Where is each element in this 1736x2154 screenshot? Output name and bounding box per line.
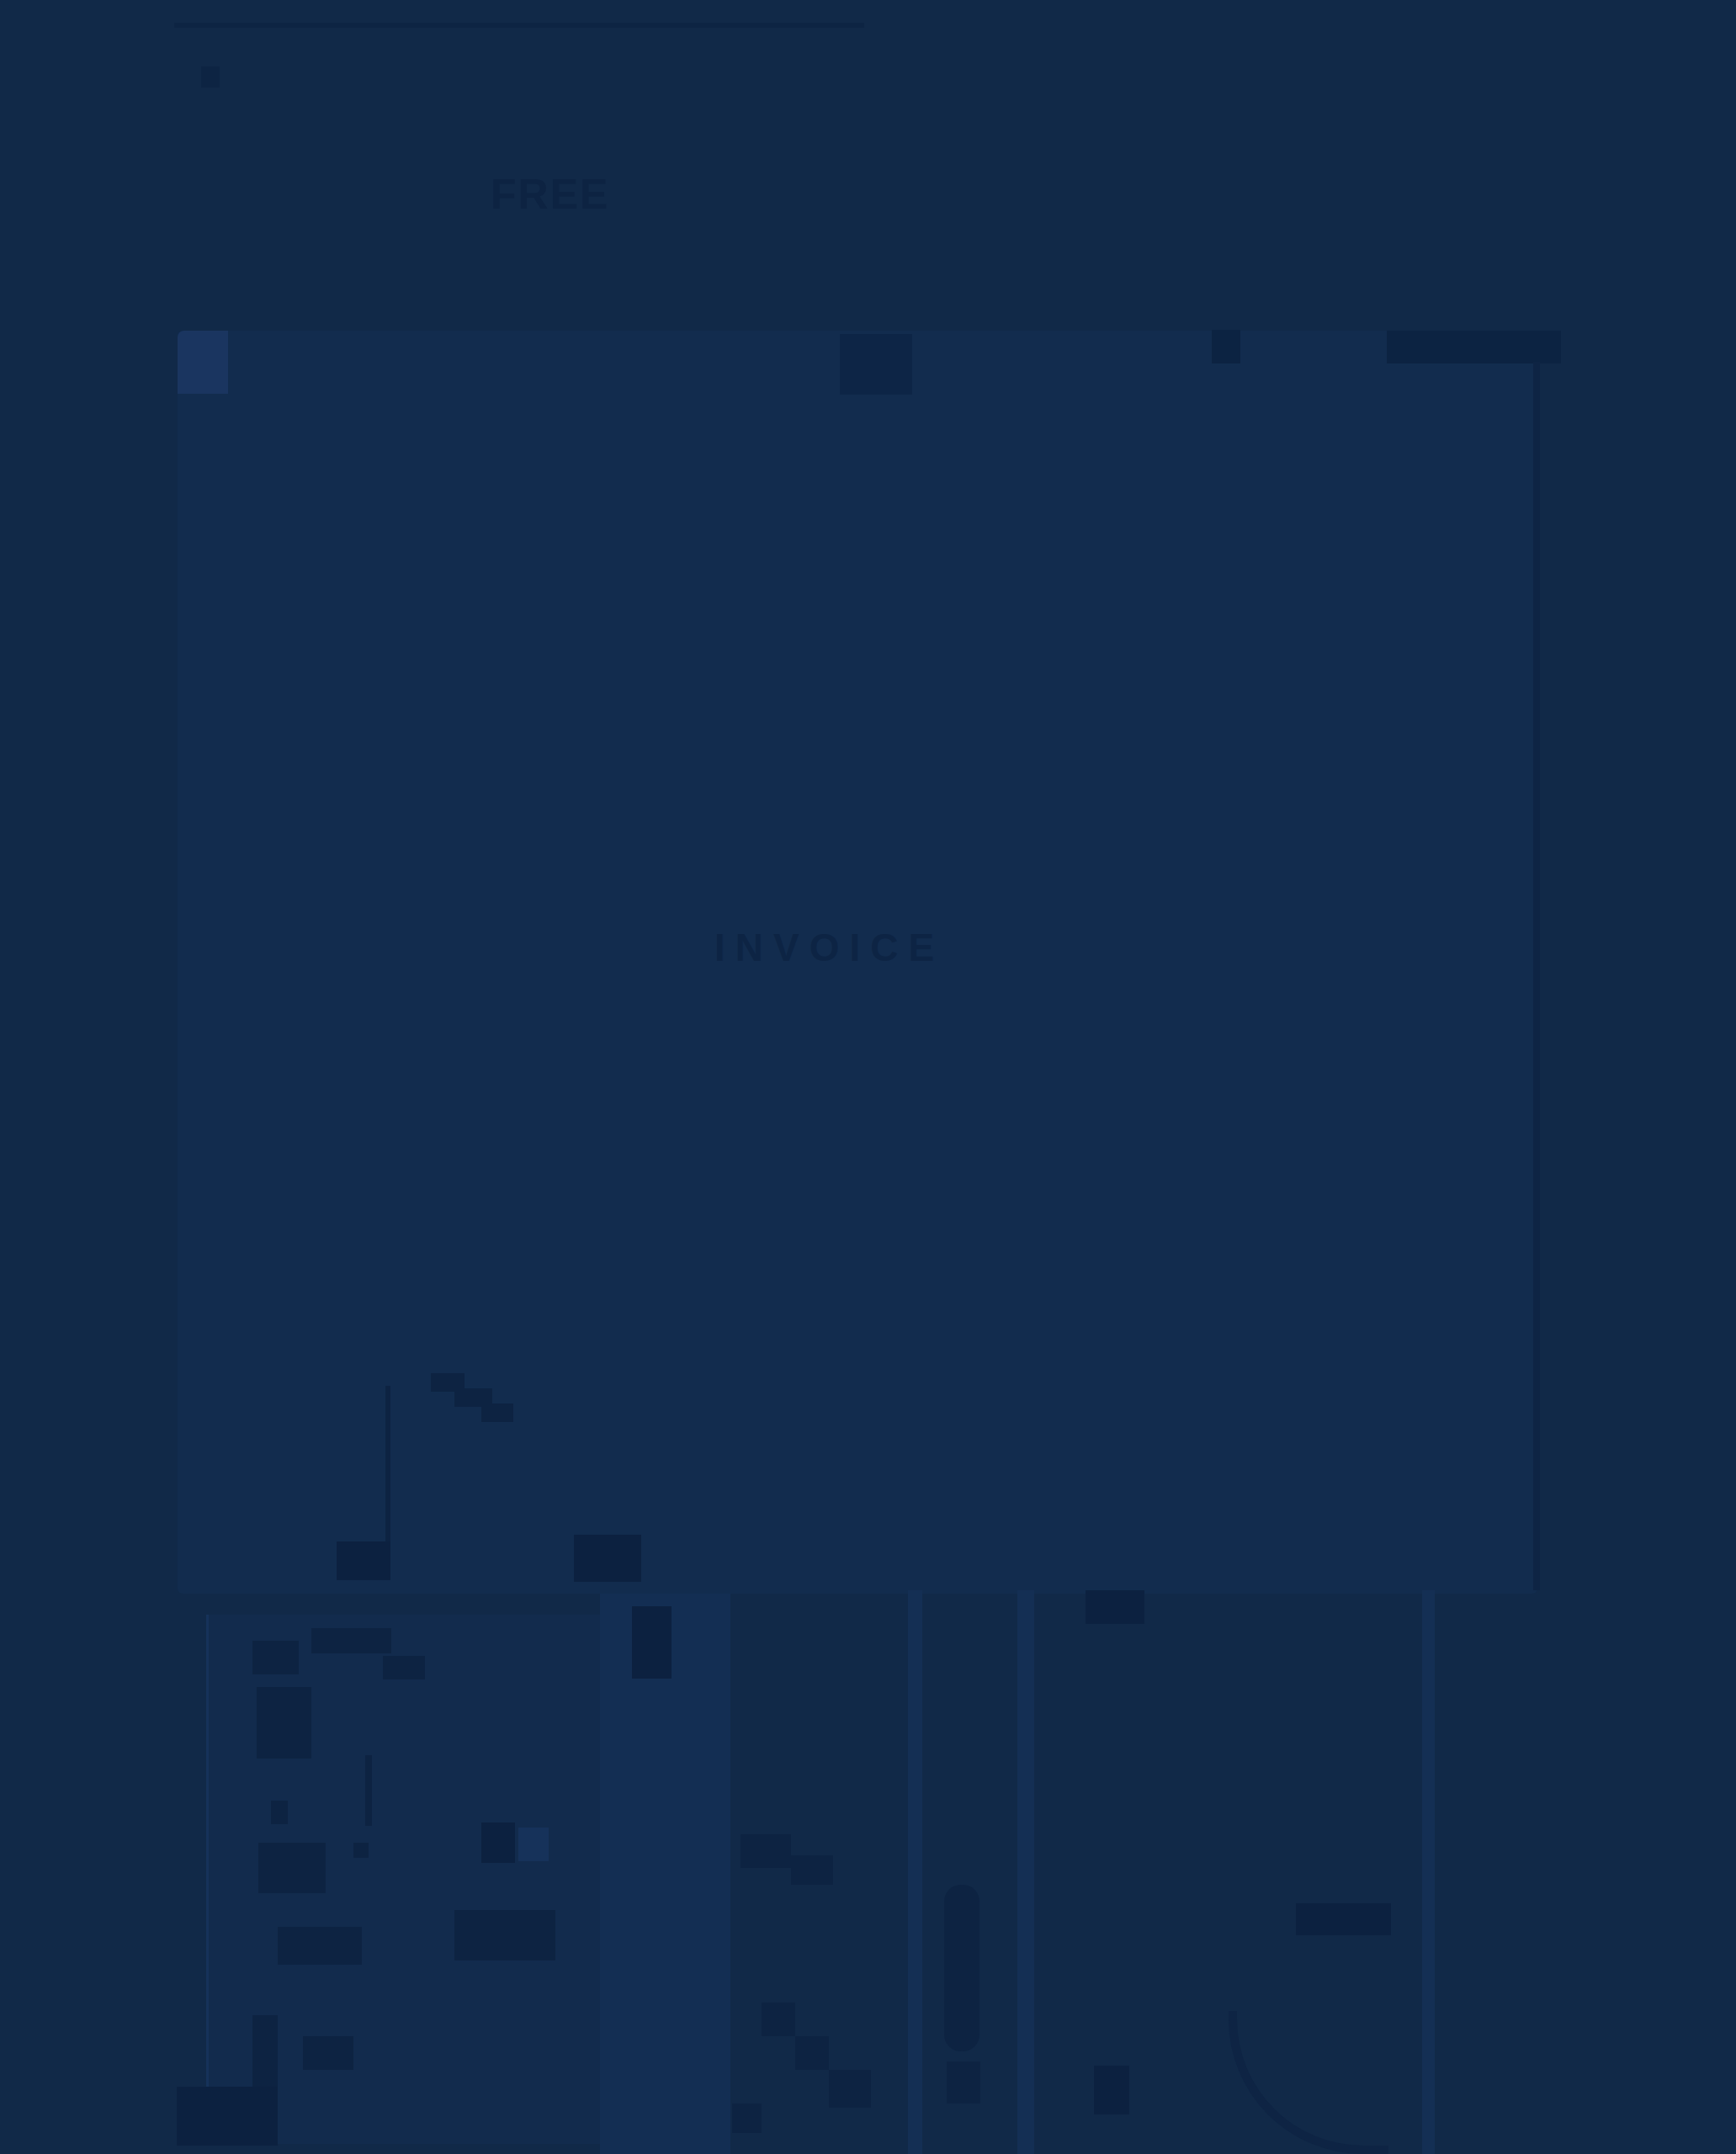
- faint-text-block: [258, 1843, 326, 1893]
- section-divider-strip: [1017, 1590, 1034, 2154]
- page-corner-highlight: [178, 331, 228, 394]
- illustration-blob: [947, 2061, 980, 2104]
- illustration-step-block: [481, 1403, 513, 1422]
- illustration-step-block: [762, 2003, 795, 2036]
- menu-icon[interactable]: [201, 66, 220, 88]
- illustration-blob: [732, 2104, 762, 2133]
- illustration-blob: [271, 1801, 288, 1824]
- faint-text-block: [454, 1910, 555, 1960]
- page-toolbar-icon[interactable]: [1212, 330, 1240, 363]
- illustration-blob: [311, 1628, 391, 1653]
- illustration-base-band: [337, 1541, 390, 1580]
- illustration-base-band: [574, 1535, 641, 1582]
- dimmed-webpage: FREE INVOICE: [0, 0, 1736, 2154]
- illustration-step-block: [829, 2070, 871, 2108]
- faint-text-block: [741, 1834, 791, 1868]
- illustration-blob: [252, 1641, 299, 1674]
- faint-image-block: [1086, 1590, 1144, 1624]
- illustration-step-block: [795, 2036, 829, 2070]
- illustration-blob: [303, 2036, 353, 2070]
- faint-text-block: [278, 1927, 362, 1965]
- faint-text-block: [791, 1855, 833, 1885]
- section-divider-strip: [1422, 1590, 1435, 2154]
- illustration-blob: [257, 1687, 311, 1759]
- faint-label-glyph: [518, 1828, 549, 1861]
- curve-illustration: [1229, 2011, 1388, 2154]
- faint-icon-block: [353, 1843, 369, 1858]
- illustration-blob: [383, 1656, 425, 1679]
- page-right-edge-line: [1533, 362, 1540, 1590]
- illustration-line: [365, 1755, 372, 1826]
- faint-image-block: [632, 1606, 672, 1679]
- faint-button-block[interactable]: [1296, 1903, 1391, 1935]
- pencil-illustration: [944, 1885, 979, 2051]
- page-toolbar-button[interactable]: [1387, 331, 1561, 363]
- page-toolbar-tab[interactable]: [840, 334, 912, 395]
- faint-label-glyph: [481, 1822, 515, 1863]
- illustration-blob: [177, 2087, 278, 2146]
- faint-image-block: [1094, 2066, 1129, 2114]
- section-divider-strip: [908, 1590, 922, 2154]
- site-logo[interactable]: FREE: [491, 171, 625, 218]
- header-divider-line: [174, 23, 864, 28]
- invoice-watermark-title: INVOICE: [714, 924, 967, 971]
